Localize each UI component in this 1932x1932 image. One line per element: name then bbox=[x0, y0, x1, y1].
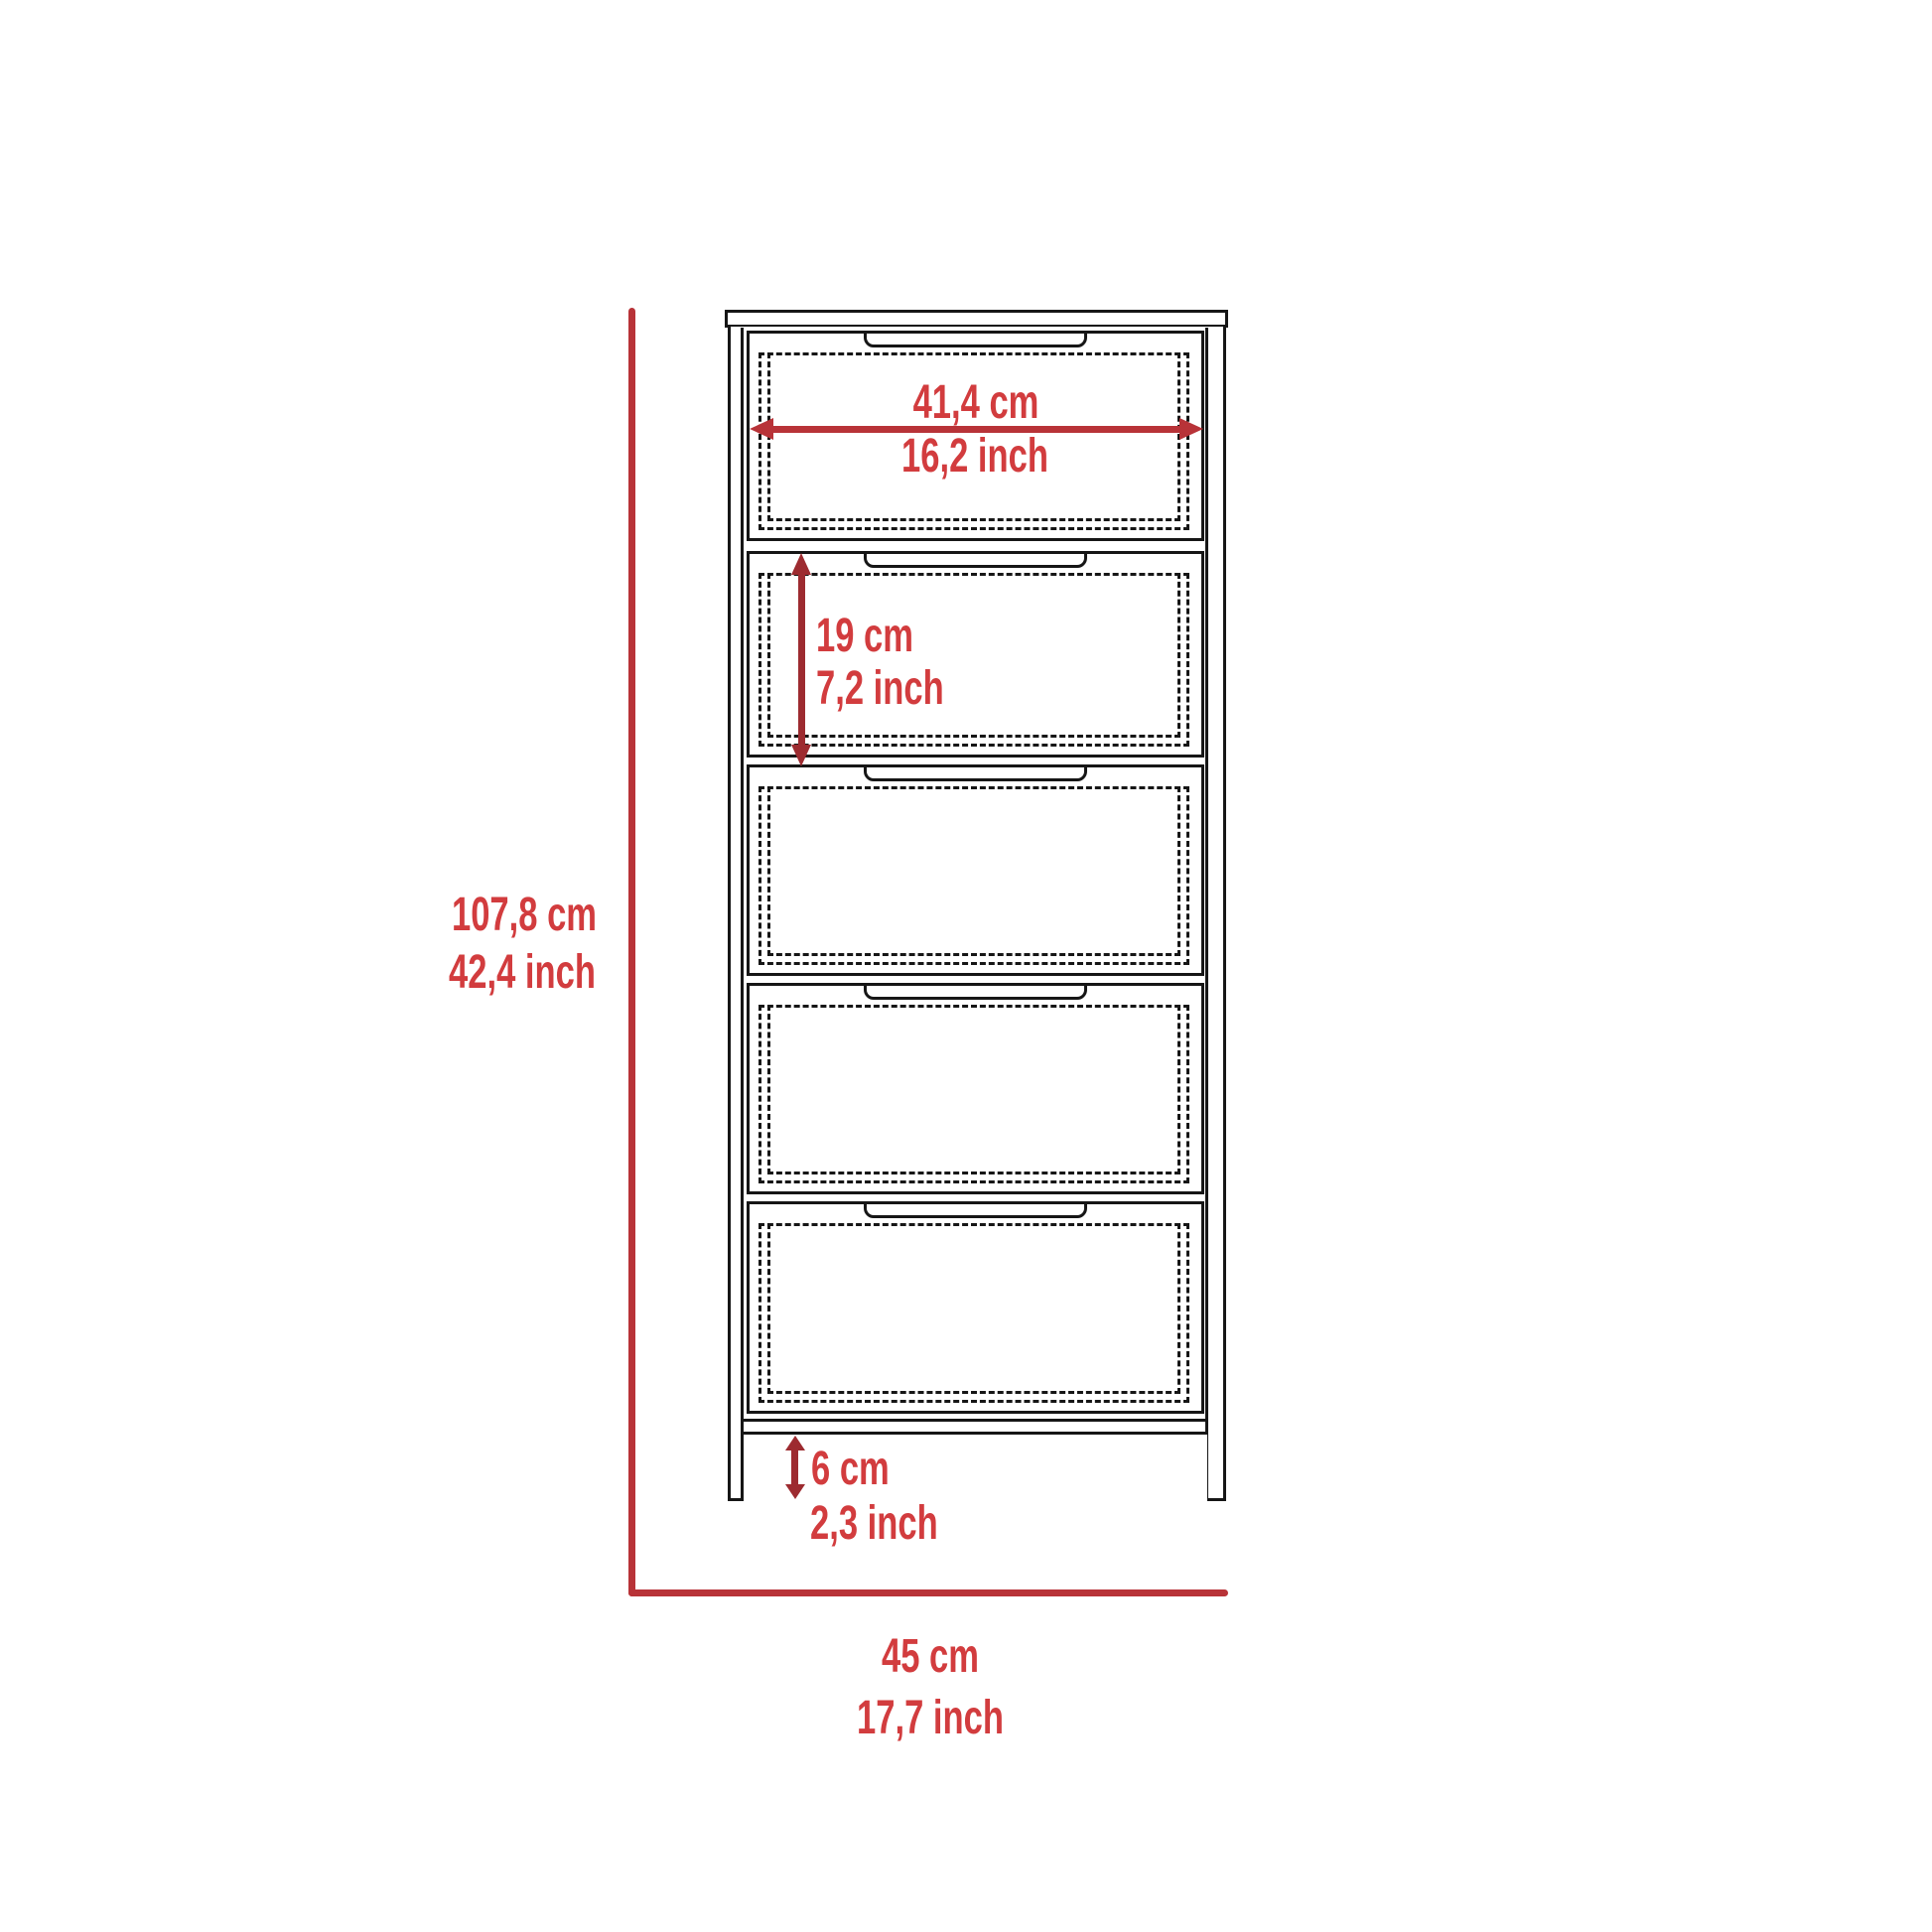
drawer-1-handle-notch bbox=[864, 331, 1087, 347]
cabinet-top-panel bbox=[725, 310, 1228, 328]
drawer-height-inch-label: 7,2 inch bbox=[816, 665, 944, 713]
overall-width-dimension-line bbox=[628, 1589, 1228, 1596]
drawer-4-dashed-box bbox=[767, 1005, 1180, 1174]
drawer-5 bbox=[747, 1201, 1204, 1414]
drawer-5-handle-notch bbox=[864, 1201, 1087, 1218]
drawer-height-arrow bbox=[791, 553, 812, 766]
overall-height-cm-label: 107,8 cm bbox=[452, 892, 597, 939]
drawer-width-inch-label: 16,2 inch bbox=[901, 433, 1048, 481]
drawer-width-cm-label: 41,4 cm bbox=[913, 379, 1039, 427]
drawer-4 bbox=[747, 983, 1204, 1194]
arrow-right-head bbox=[1179, 418, 1203, 440]
base-height-cm-label: 6 cm bbox=[811, 1446, 890, 1493]
drawer-2-handle-notch bbox=[864, 551, 1087, 568]
drawer-5-dashed-box bbox=[767, 1223, 1180, 1394]
arrow-down-head bbox=[791, 745, 811, 766]
drawer-4-handle-notch bbox=[864, 983, 1087, 1000]
arrow-shaft bbox=[798, 569, 805, 751]
drawer-3-dashed-box bbox=[767, 786, 1180, 956]
bottom-rail-line bbox=[744, 1419, 1207, 1422]
base-height-arrow bbox=[785, 1436, 805, 1499]
drawer-3 bbox=[747, 764, 1204, 976]
overall-width-inch-label: 17,7 inch bbox=[857, 1695, 1004, 1742]
furniture-dimension-diagram: 107,8 cm 42,4 inch 41,4 cm 16,2 inch 19 … bbox=[0, 0, 1932, 1932]
left-side-panel-inner-line bbox=[741, 328, 744, 1498]
overall-height-dimension-line bbox=[628, 308, 635, 1596]
arrow-shaft bbox=[791, 1447, 798, 1488]
overall-width-cm-label: 45 cm bbox=[882, 1633, 979, 1681]
drawer-height-cm-label: 19 cm bbox=[816, 613, 913, 660]
base-height-inch-label: 2,3 inch bbox=[810, 1500, 938, 1548]
right-side-panel-inner-line bbox=[1205, 328, 1208, 1498]
overall-height-inch-label: 42,4 inch bbox=[449, 949, 596, 997]
arrow-down-head bbox=[785, 1484, 805, 1499]
drawer-3-handle-notch bbox=[864, 764, 1087, 781]
